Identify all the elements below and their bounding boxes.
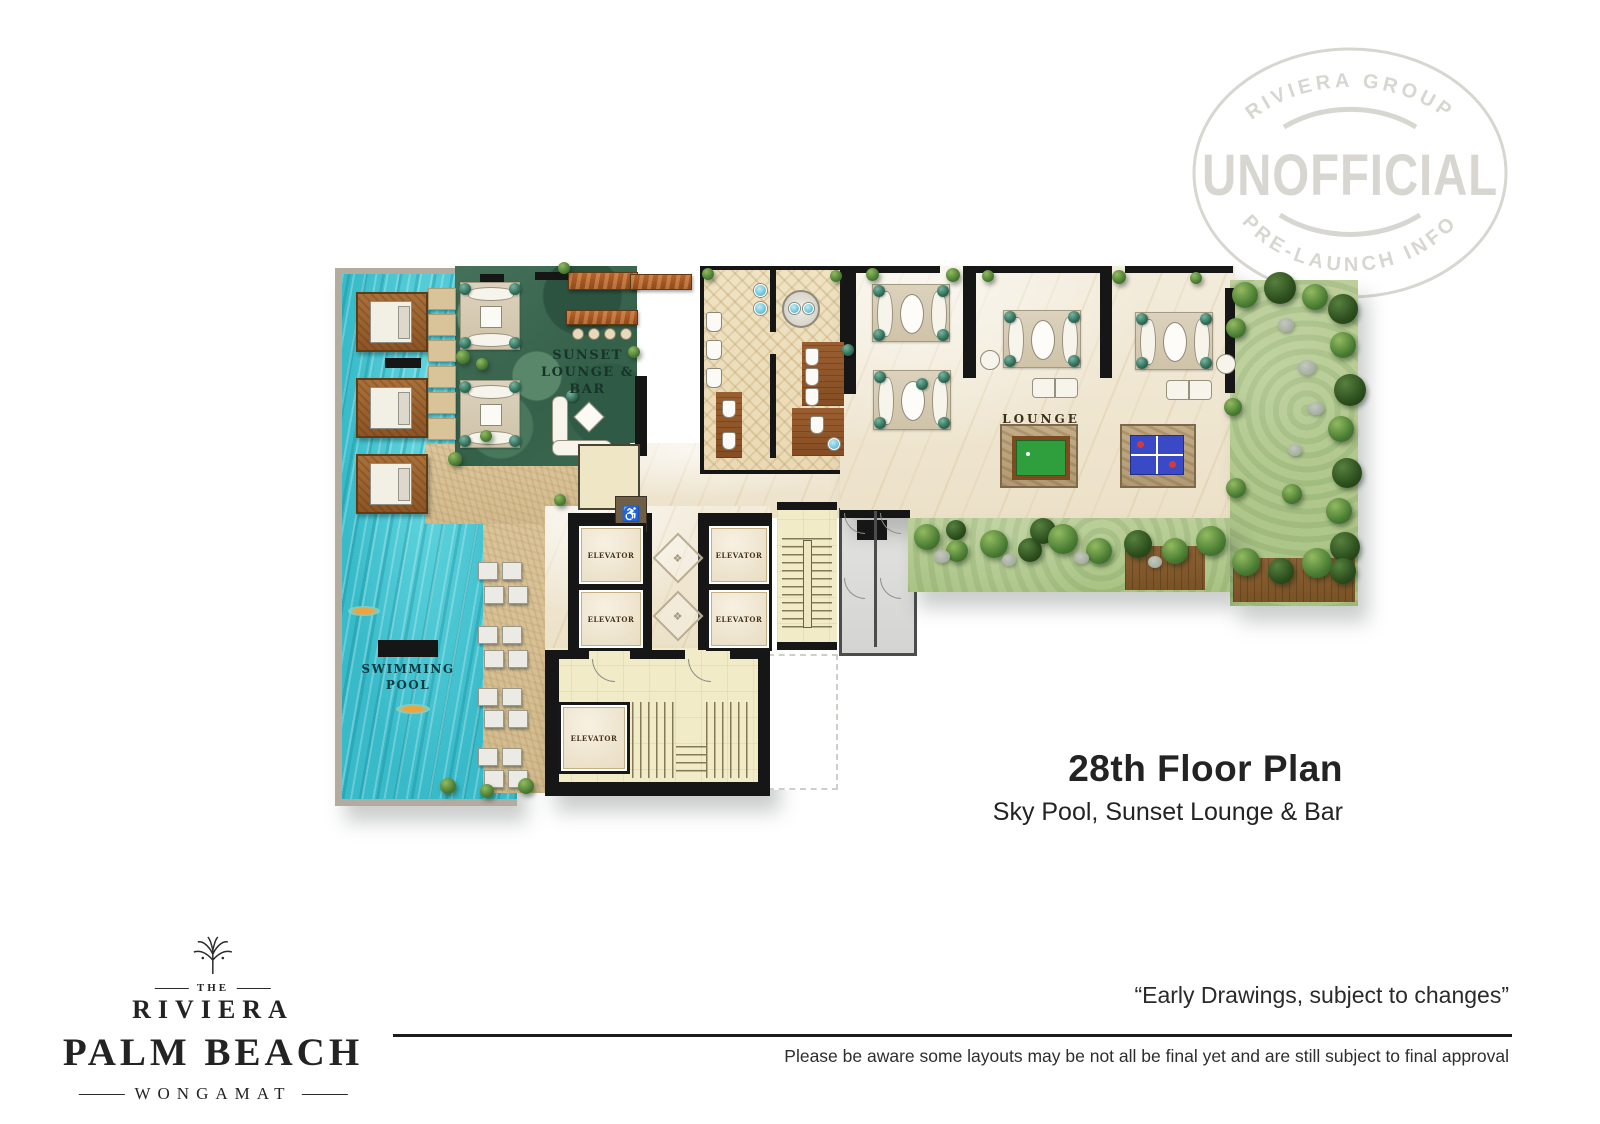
sun-lounger-pair [484,586,528,604]
plant [558,262,570,274]
watermark-arc-top: RIVIERA GROUP [1242,70,1459,124]
plant [480,784,494,798]
bar-counter [566,310,638,325]
plant [1190,272,1202,284]
cabana [356,454,428,514]
watermark-center: UNOFFICIAL [1202,143,1498,208]
plant [1162,538,1188,564]
page: { "watermark": { "arc_top": "RIVIERA GRO… [0,0,1600,1124]
urinal [706,368,722,388]
plant [1334,374,1366,406]
elevator-cell: ELEVATOR [558,702,630,774]
plant [980,530,1008,558]
logo-riviera: RIVIERA [63,995,363,1025]
plant [946,268,960,282]
swimmer-figure [396,704,430,714]
wall-pier [963,266,976,378]
plant [982,270,994,282]
logo-rule [302,1094,348,1095]
l-shaped-sofa [552,396,568,446]
wall-segment [730,650,758,659]
plant [946,520,966,540]
wall-segment [777,502,837,510]
seating-cluster [872,284,950,342]
caption-block: 28th Floor Plan Sky Pool, Sunset Lounge … [993,748,1343,827]
wall-segment [758,650,770,796]
plant [1328,416,1354,442]
plant [518,778,534,794]
toilet-room [792,408,844,456]
plant [628,346,640,358]
dashed-boundary [768,654,838,790]
early-drawings-quote: “Early Drawings, subject to changes” [1134,982,1509,1009]
stepping-stone [428,392,456,414]
plant [554,494,566,506]
plant [1226,478,1246,498]
elevator-cell: ELEVATOR [576,587,646,651]
bar-counter [568,272,638,290]
plant [1330,558,1356,584]
disclaimer-text: Please be aware some layouts may be not … [784,1046,1509,1067]
plant [1224,398,1242,416]
plant [1332,458,1362,488]
wall-segment [1125,266,1233,273]
plant [1330,332,1356,358]
plant [1326,498,1352,524]
logo-wongamat-row: WONGAMAT [63,1084,363,1104]
plant [1124,530,1152,558]
plant [448,452,462,466]
stone [1148,556,1162,568]
bench-sofa [1166,380,1212,400]
toilet-stalls [802,342,844,406]
plant [1282,484,1302,504]
divider-line [393,1034,1512,1037]
seating-cluster [460,282,520,350]
elevator-label: ELEVATOR [716,551,763,560]
swimmer-figure [348,606,380,616]
stone [1308,402,1324,415]
toilet [810,416,824,434]
sun-lounger-pair [478,688,522,706]
stone [1278,318,1294,332]
logo-palm-beach: PALM BEACH [63,1030,363,1075]
wall-segment [770,270,776,332]
stairs [706,702,750,778]
plant [1048,524,1078,554]
seating-cluster [1135,312,1213,370]
plant [1086,538,1112,564]
palm-ornament-icon [186,936,240,976]
plant [1328,294,1358,324]
toilet-stalls [716,392,742,458]
plant [456,350,470,364]
sun-lounger-pair [478,748,522,766]
plant [1302,284,1328,310]
table-tennis-table [1130,435,1184,475]
cabana [356,292,428,352]
plant [914,524,940,550]
svg-text:RIVIERA GROUP: RIVIERA GROUP [1242,70,1459,124]
wall-segment [630,650,685,659]
stair-landing [676,746,706,778]
pool-label-bar [378,640,438,657]
plant [1196,526,1226,556]
plant [480,430,492,442]
plant [842,344,854,356]
elevator-cell: ELEVATOR [706,523,772,587]
elevator-cell: ELEVATOR [576,523,646,587]
bar-stool [620,328,632,340]
billiards-table [1012,436,1070,480]
stone [1288,444,1302,456]
lounge-chair [1216,354,1236,374]
urinal [706,312,722,332]
wall-pier [1225,288,1235,393]
logo-rule [155,988,189,989]
logo-wongamat: WONGAMAT [134,1084,291,1104]
elevator-label: ELEVATOR [571,734,618,743]
floor-plan: SWIMMING POOL SUNSET LOUNGE & BAR [330,258,1370,803]
plant [476,358,488,370]
plant [830,270,842,282]
lounge-chair [980,350,1000,370]
brand-logo: THE RIVIERA PALM BEACH WONGAMAT [63,936,363,1104]
plant [916,378,928,390]
plant [1302,548,1332,578]
stone [1002,554,1016,566]
wall-segment [777,642,837,650]
sun-lounger-pair [478,562,522,580]
plant [440,778,456,794]
elevator-label: ELEVATOR [716,615,763,624]
plant [1264,272,1296,304]
elevator-cell: ELEVATOR [706,587,772,651]
bar-stool [588,328,600,340]
plant [702,268,714,280]
bench-sofa [1032,378,1078,398]
wall-segment [545,650,559,796]
wall-segment [770,354,776,458]
logo-rule [237,988,271,989]
logo-rule [78,1094,124,1095]
sun-lounger-pair [484,710,528,728]
logo-the: THE [197,982,229,994]
seating-cluster [1003,310,1081,368]
stepping-stone [428,340,456,362]
bar-stool [572,328,584,340]
room-divider [874,511,877,647]
stepping-stone [428,314,456,336]
elevator-label: ELEVATOR [588,615,635,624]
plant [1112,270,1126,284]
plant [866,268,879,281]
stone [1074,552,1089,564]
plant [1268,558,1294,584]
stepping-stone [428,288,456,310]
plant [1232,282,1258,308]
seating-cluster [873,370,951,430]
sun-lounger-pair [478,626,522,644]
wall-segment [545,782,770,796]
stone [1298,360,1316,375]
page-title: 28th Floor Plan [993,748,1343,790]
wall-pier [1100,266,1112,378]
elevator-label: ELEVATOR [588,551,635,560]
plant [1232,548,1260,576]
sun-lounger-pair [484,650,528,668]
bar-counter [630,274,692,290]
wall-segment [559,650,589,659]
sink [754,302,767,315]
basin-table [782,290,820,328]
stairs [632,702,676,778]
wall-segment [385,358,421,368]
bar-stool [604,328,616,340]
sink [828,438,840,450]
page-subtitle: Sky Pool, Sunset Lounge & Bar [993,798,1343,827]
logo-the-row: THE [63,982,363,994]
stair-divider [803,540,812,628]
cabana [356,378,428,438]
sink [754,284,767,297]
stepping-stone [428,418,456,440]
stone [934,550,950,563]
stepping-stone [428,366,456,388]
swimming-pool-label: SWIMMING POOL [348,662,468,693]
urinal [706,340,722,360]
plant [1226,318,1246,338]
